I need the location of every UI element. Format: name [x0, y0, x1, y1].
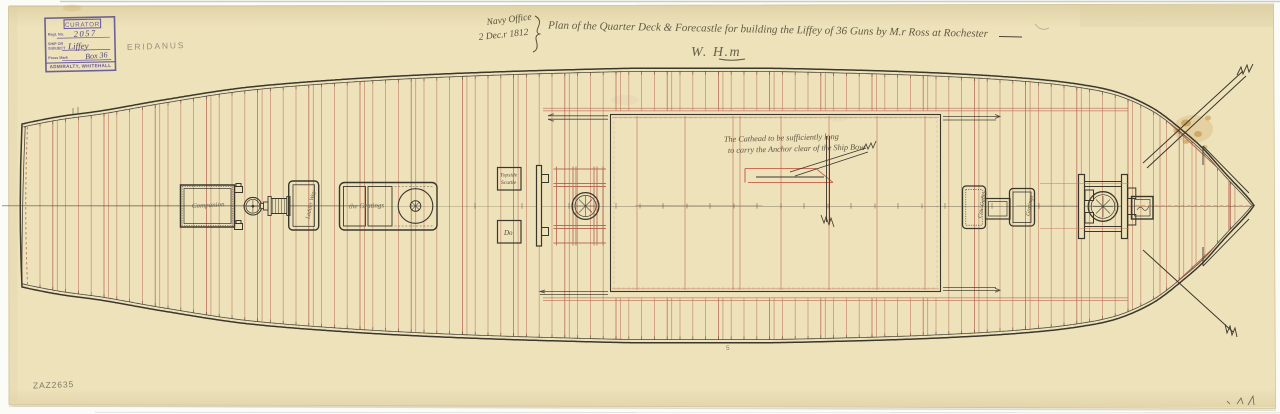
svg-text:Do: Do	[503, 229, 513, 237]
svg-text:Topside: Topside	[500, 173, 518, 179]
svg-text:W. H.m: W. H.m	[691, 45, 741, 60]
svg-text:ERIDANUS: ERIDANUS	[127, 40, 186, 52]
svg-text:Press Mark: Press Mark	[48, 56, 69, 60]
svg-text:Liffey: Liffey	[67, 41, 89, 51]
svg-text:Regt. No.: Regt. No.	[48, 32, 64, 36]
svg-text:the Gratings: the Gratings	[349, 201, 385, 210]
svg-text:ZAZ2635: ZAZ2635	[33, 379, 75, 390]
svg-text:Scuttle: Scuttle	[501, 180, 517, 186]
svg-text:5: 5	[726, 345, 730, 352]
svg-text:2057: 2057	[73, 28, 97, 39]
